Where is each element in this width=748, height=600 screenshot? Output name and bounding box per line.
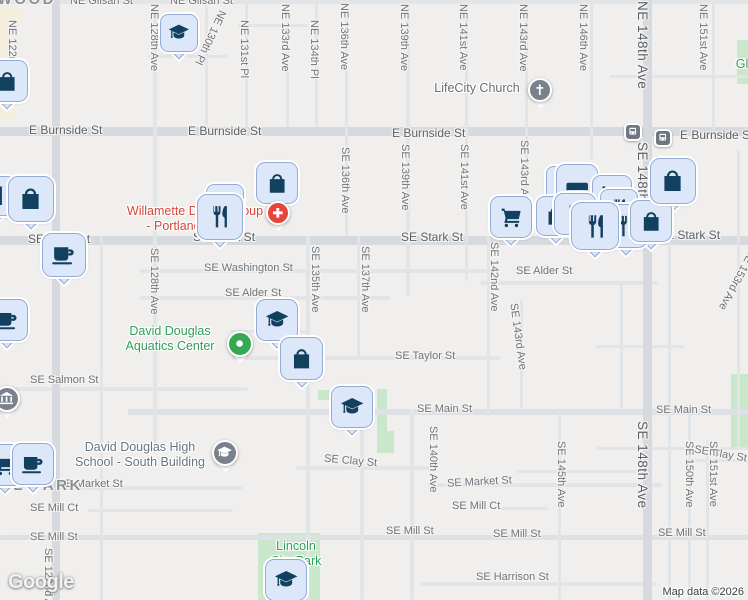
street-label: SE Taylor St bbox=[395, 350, 455, 362]
shopping-bag-icon bbox=[288, 345, 315, 372]
street-label: NE 133rd Ave bbox=[279, 4, 291, 72]
street-label: SE Harrison St bbox=[476, 571, 549, 583]
street-label: SE Mill St bbox=[386, 525, 434, 537]
graduation-cap-pin[interactable] bbox=[212, 440, 238, 466]
street-label: SE 137th Ave bbox=[359, 246, 371, 312]
medical-cross-icon bbox=[270, 205, 286, 221]
google-logo[interactable]: Google bbox=[8, 571, 74, 594]
coffee-pin[interactable] bbox=[12, 443, 54, 485]
museum-pin[interactable] bbox=[0, 386, 20, 412]
road bbox=[0, 535, 748, 540]
neighborhood-label: HAZELWOOD bbox=[0, 0, 56, 8]
street-label: SE 153rd Ave bbox=[716, 247, 748, 312]
road bbox=[643, 0, 652, 600]
shopping-bag-icon bbox=[264, 170, 290, 196]
street-label: NE 151st Ave bbox=[697, 4, 709, 70]
coffee-pin[interactable] bbox=[42, 233, 86, 277]
restaurant-icon bbox=[205, 202, 234, 231]
street-label: NE Glisan St bbox=[170, 0, 233, 7]
street-label: SE 145th Ave bbox=[555, 441, 567, 507]
road bbox=[100, 236, 103, 600]
graduation-cap-pin[interactable] bbox=[256, 299, 298, 341]
road bbox=[620, 283, 623, 409]
street-label: SE 136th Ave bbox=[339, 147, 351, 213]
street-label: NE 134th Pl bbox=[308, 20, 320, 79]
coffee-icon bbox=[50, 241, 78, 269]
bus-badge[interactable] bbox=[654, 129, 672, 147]
street-label: SE 148th Ave bbox=[635, 421, 650, 509]
church-cross-icon bbox=[532, 82, 548, 98]
street-label: NE 146th Ave bbox=[577, 4, 589, 71]
street-label: SE 140th Ave bbox=[427, 426, 439, 492]
street-label: E Burnside St bbox=[188, 124, 261, 138]
street-label: E Burnside St bbox=[29, 123, 102, 137]
shopping-bag-pin[interactable] bbox=[8, 176, 54, 222]
road bbox=[500, 507, 548, 510]
shopping-bag-icon bbox=[658, 166, 687, 195]
street-label: SE Salmon St bbox=[30, 374, 98, 386]
museum-icon bbox=[0, 390, 16, 407]
street-label: SE Washington St bbox=[204, 262, 293, 274]
coffee-pin[interactable] bbox=[0, 299, 28, 341]
graduation-cap-icon bbox=[273, 567, 299, 593]
street-label: NE 139th Ave bbox=[398, 4, 410, 71]
shopping-bag-icon bbox=[638, 208, 664, 234]
graduation-cap-pin[interactable] bbox=[160, 14, 198, 52]
coffee-icon bbox=[20, 451, 46, 477]
restaurant-icon bbox=[580, 211, 610, 241]
road bbox=[480, 281, 658, 285]
shopping-bag-icon bbox=[0, 68, 20, 94]
shopping-bag-pin[interactable] bbox=[0, 60, 28, 102]
shopping-cart-pin[interactable] bbox=[490, 196, 532, 238]
street-label: SE 141st Ave bbox=[458, 144, 470, 210]
road bbox=[232, 356, 500, 360]
restaurant-pin[interactable] bbox=[197, 194, 243, 240]
poi-label[interactable]: Gl bbox=[736, 57, 748, 72]
poi-label[interactable]: David DouglasAquatics Center bbox=[126, 324, 215, 353]
street-label: E Burnside St bbox=[680, 128, 748, 142]
street-label: SE Main St bbox=[417, 403, 472, 415]
dot-pin[interactable] bbox=[227, 331, 253, 357]
road bbox=[595, 345, 685, 348]
street-label: NE 136th Ave bbox=[338, 3, 350, 70]
road bbox=[610, 75, 748, 78]
street-label: SE Stark St bbox=[401, 230, 463, 244]
map-canvas[interactable]: NE Glisan StNE Glisan StE Burnside StE B… bbox=[0, 0, 748, 600]
street-label: SE Mill St bbox=[30, 531, 78, 543]
shopping-bag-pin[interactable] bbox=[256, 162, 298, 204]
street-label: SE Mill St bbox=[658, 527, 706, 539]
dot-icon bbox=[231, 335, 248, 352]
bus-icon bbox=[627, 126, 638, 137]
road bbox=[517, 470, 637, 473]
street-label: SE Alder St bbox=[225, 287, 281, 299]
shopping-bag-icon bbox=[16, 184, 45, 213]
street-label: NE 128th Ave bbox=[148, 4, 160, 71]
street-label: NE Glisan St bbox=[70, 0, 133, 7]
street-label: SE 135th Ave bbox=[309, 246, 321, 312]
bus-badge[interactable] bbox=[624, 123, 642, 141]
street-label: E Burnside St bbox=[392, 126, 465, 140]
street-label: NE 143rd Ave bbox=[517, 4, 529, 72]
park-area bbox=[377, 431, 394, 453]
church-cross-pin[interactable] bbox=[528, 78, 552, 102]
coffee-icon bbox=[0, 307, 20, 333]
street-label: SE Mill Ct bbox=[452, 500, 500, 512]
road bbox=[148, 55, 228, 58]
restaurant-pin[interactable] bbox=[571, 202, 619, 250]
street-label: SE 142nd Ave bbox=[488, 242, 500, 312]
street-label: SE 128th Ave bbox=[148, 248, 160, 314]
graduation-cap-icon bbox=[264, 307, 290, 333]
road bbox=[590, 0, 593, 160]
street-label: NE 131st Pl bbox=[238, 20, 250, 78]
street-label: SE 151st Ave bbox=[707, 441, 719, 507]
street-label: SE Main St bbox=[656, 404, 711, 416]
shopping-bag-pin[interactable] bbox=[650, 158, 696, 204]
street-label: NE 148th Ave bbox=[635, 1, 650, 89]
road bbox=[88, 509, 233, 512]
poi-label[interactable]: David Douglas HighSchool - South Buildin… bbox=[75, 440, 205, 469]
road bbox=[205, 0, 208, 127]
street-label: NE 141st Ave bbox=[457, 4, 469, 70]
road bbox=[0, 387, 248, 391]
road bbox=[410, 409, 414, 600]
road bbox=[712, 0, 715, 130]
poi-label[interactable]: LifeCity Church bbox=[434, 81, 519, 96]
graduation-cap-pin[interactable] bbox=[331, 386, 373, 428]
street-label: SE 150th Ave bbox=[683, 441, 695, 507]
graduation-cap-pin[interactable] bbox=[265, 559, 307, 600]
shopping-bag-pin[interactable] bbox=[630, 200, 672, 242]
graduation-cap-icon bbox=[216, 444, 233, 461]
road bbox=[668, 236, 671, 600]
medical-cross-pin[interactable] bbox=[266, 201, 290, 225]
street-label: SE 139th Ave bbox=[399, 144, 411, 210]
graduation-cap-icon bbox=[339, 394, 365, 420]
shopping-cart-icon bbox=[498, 204, 524, 230]
bus-icon bbox=[657, 132, 668, 143]
street-label: SE Alder St bbox=[516, 265, 572, 277]
map-attribution: Map data ©2026 bbox=[663, 586, 745, 598]
shopping-bag-pin[interactable] bbox=[280, 337, 323, 380]
graduation-cap-icon bbox=[167, 21, 191, 45]
street-label: SE Mill St bbox=[493, 528, 541, 540]
street-label: SE Market St bbox=[447, 474, 512, 489]
street-label: SE Mill Ct bbox=[30, 502, 78, 514]
street-label: SE 143rd Ave bbox=[507, 302, 528, 370]
road bbox=[737, 150, 740, 450]
